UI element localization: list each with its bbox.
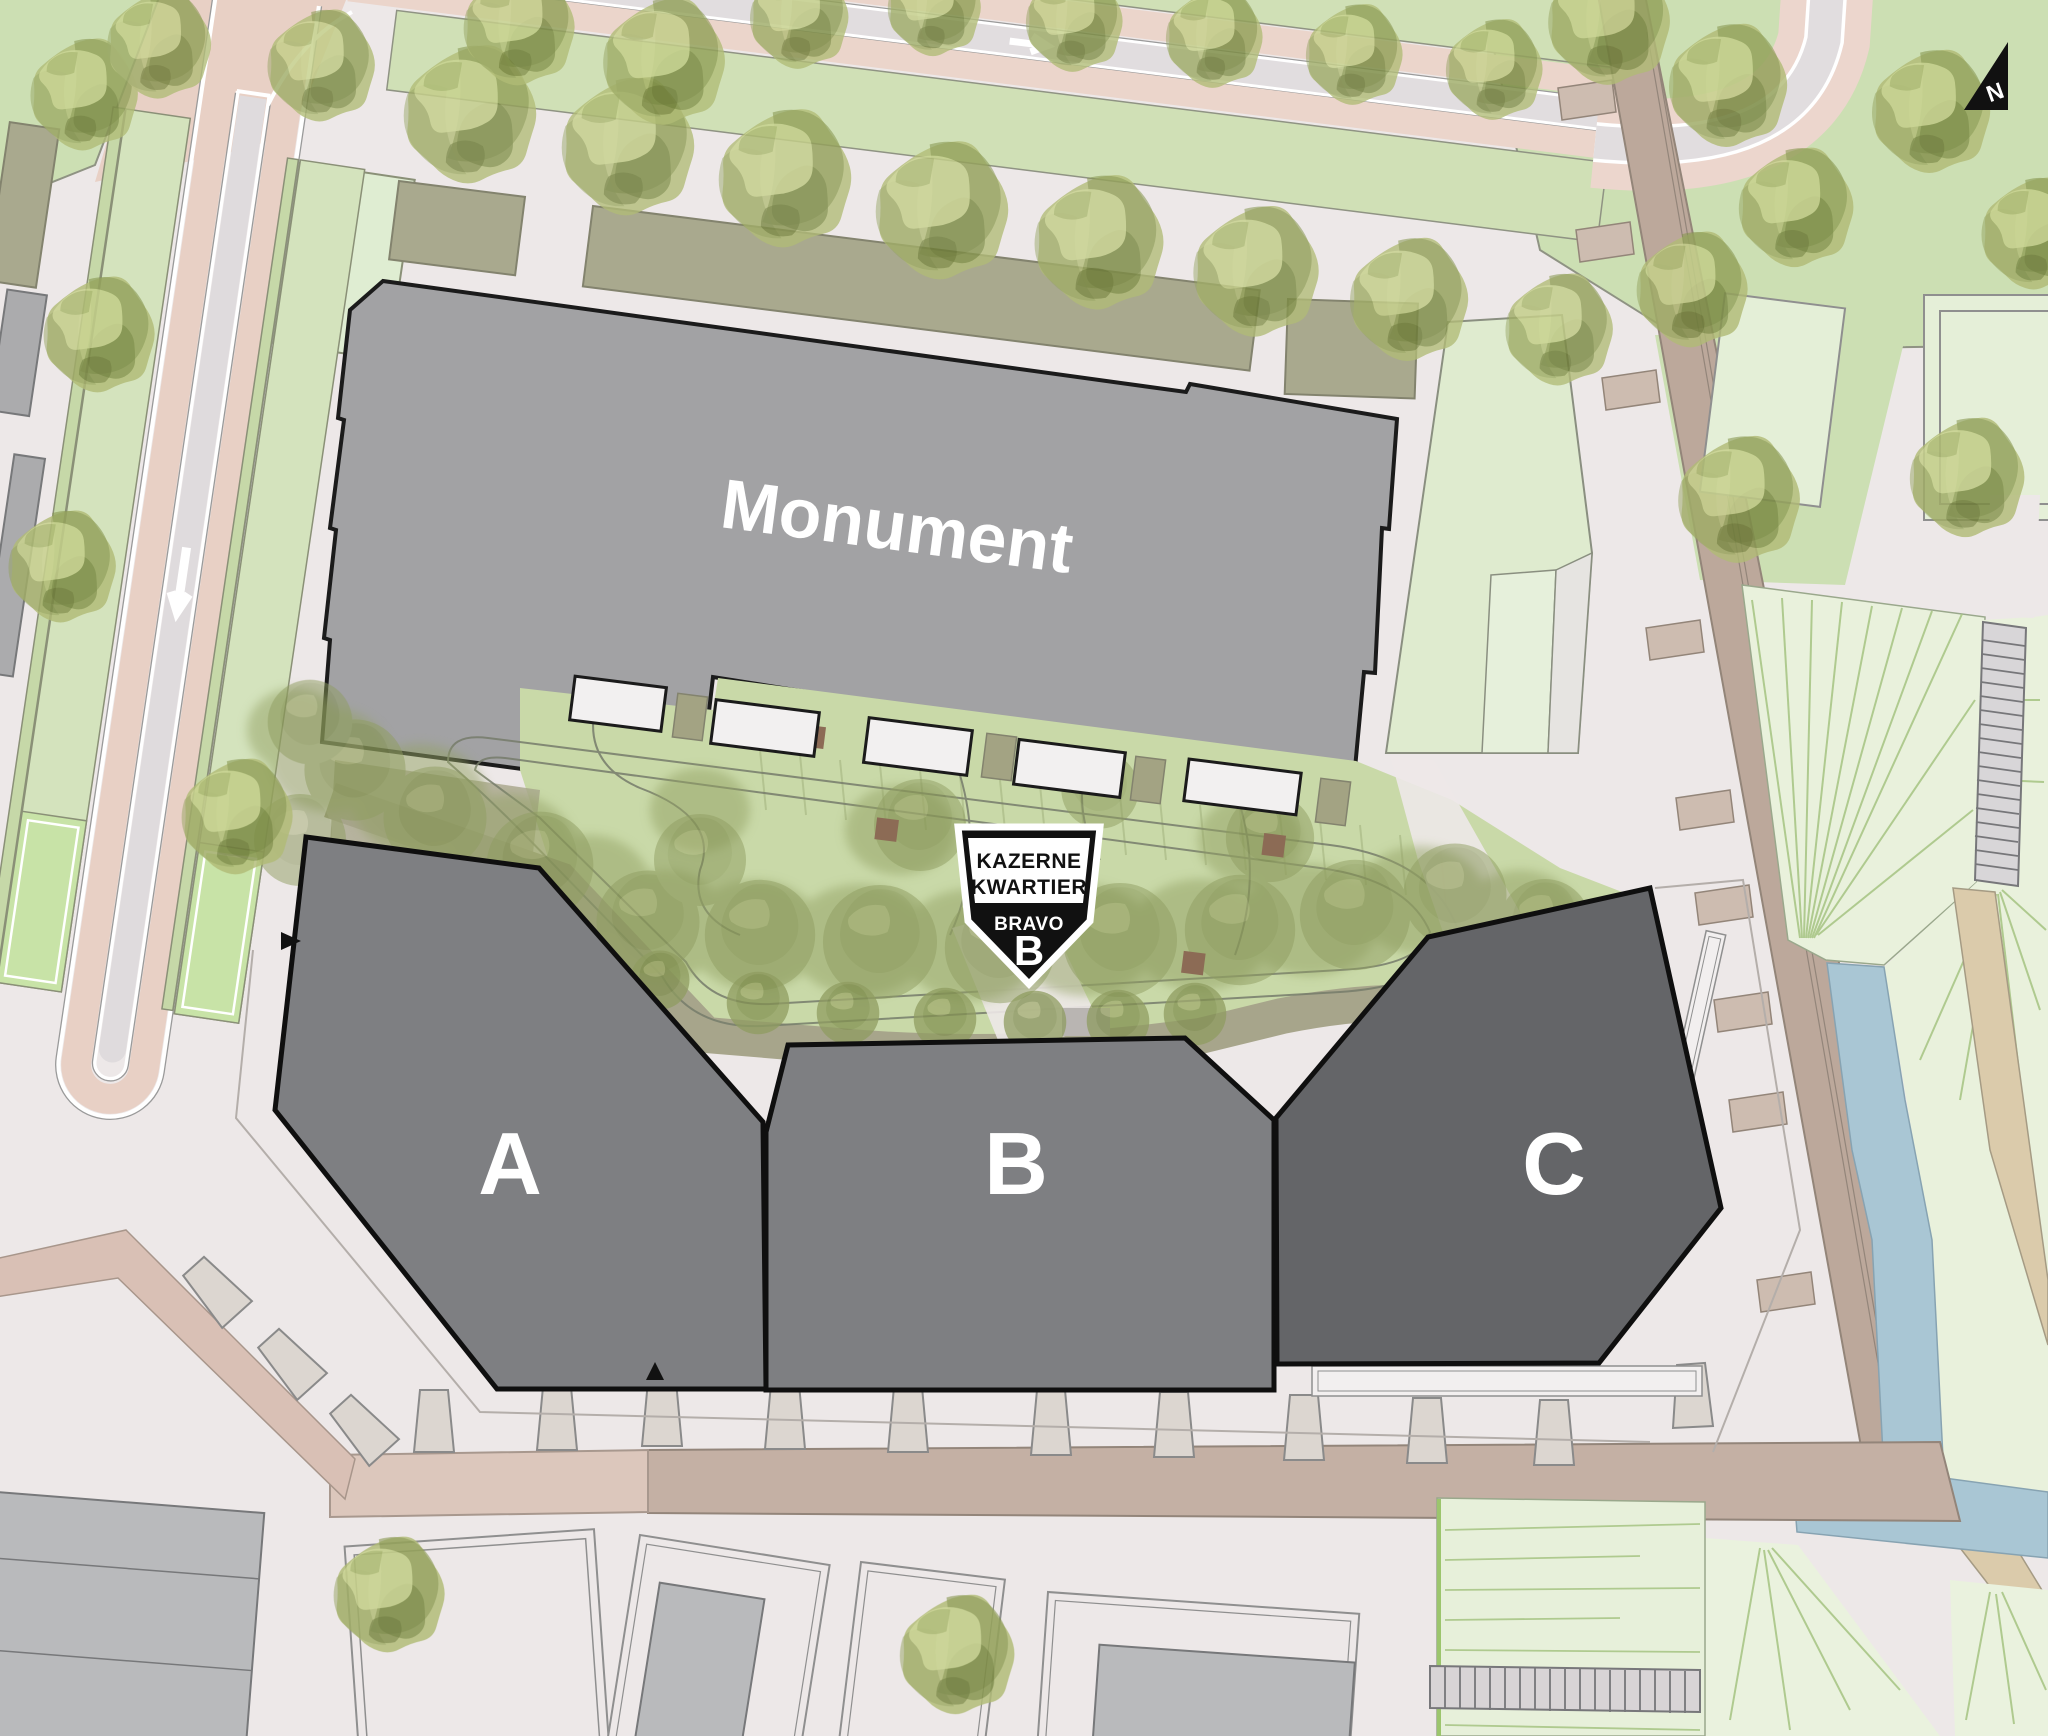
svg-text:B: B	[1014, 927, 1044, 974]
svg-text:C: C	[1522, 1114, 1586, 1213]
svg-text:A: A	[478, 1114, 542, 1213]
svg-text:KWARTIER: KWARTIER	[971, 876, 1087, 899]
svg-text:B: B	[984, 1114, 1048, 1213]
svg-text:KAZERNE: KAZERNE	[976, 850, 1081, 873]
